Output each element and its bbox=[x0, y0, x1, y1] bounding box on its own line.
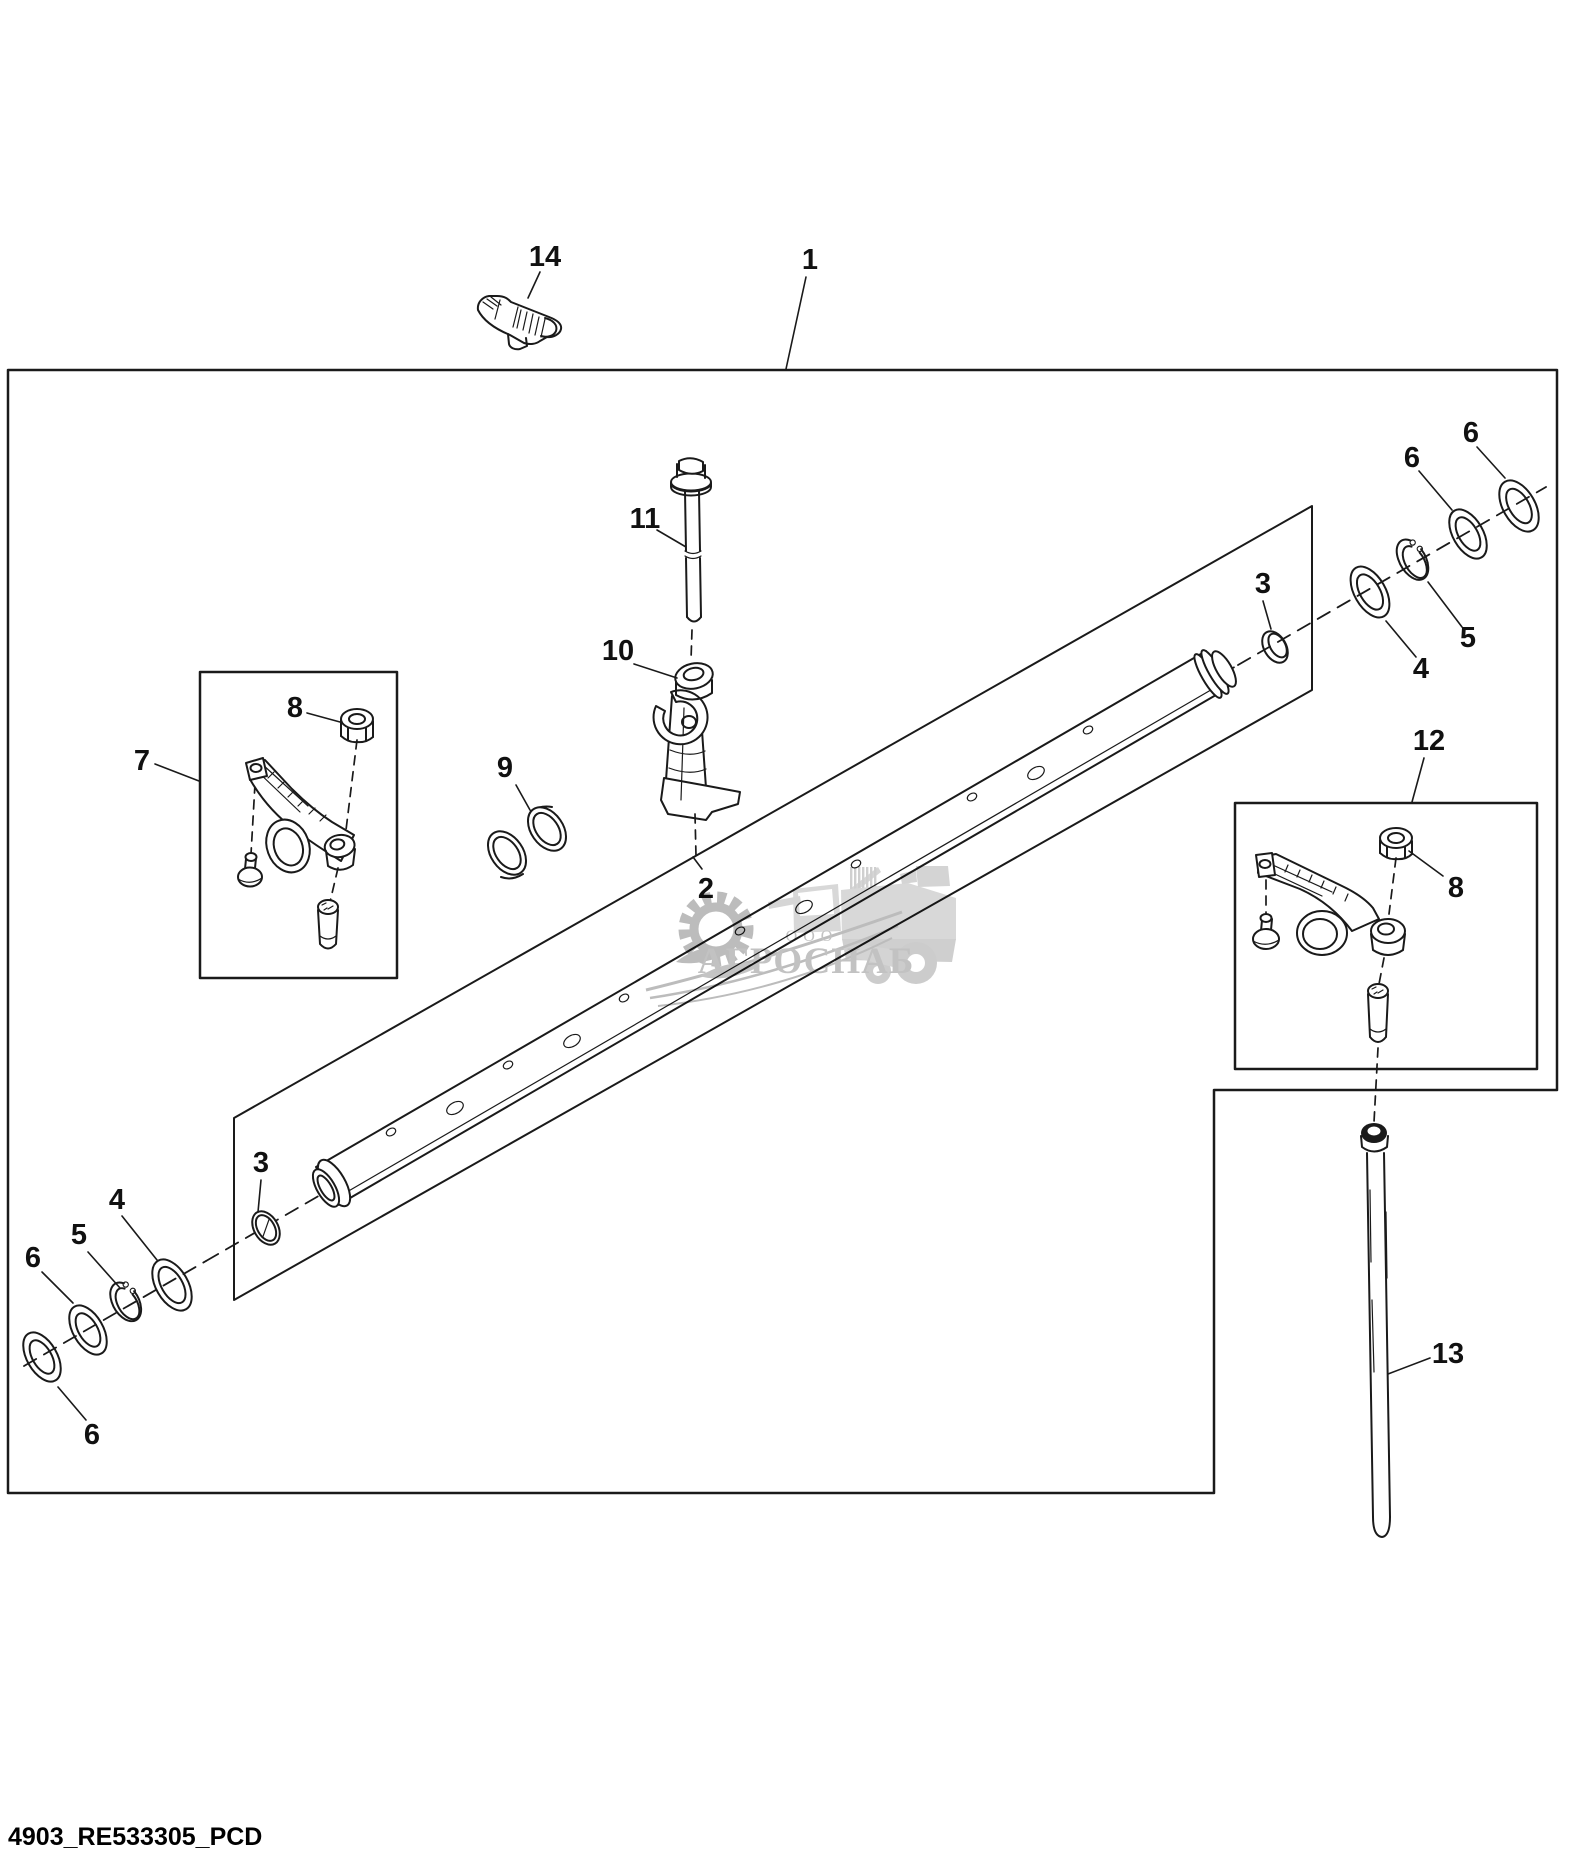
part-6-washer-left-2 bbox=[16, 1326, 69, 1388]
callout-14: 14 bbox=[529, 241, 561, 273]
part-8-nut-right bbox=[1380, 828, 1412, 859]
callout-8-left: 8 bbox=[287, 692, 303, 724]
part-13-push-rod bbox=[1361, 1123, 1390, 1537]
part-6-washer-right-inner bbox=[1442, 503, 1495, 565]
part-10-bracket bbox=[654, 660, 740, 856]
part-12-adjusting-screw bbox=[1253, 914, 1279, 949]
leader-lines bbox=[42, 272, 1505, 1420]
callout-labels: 14 1 11 10 7 8 9 2 3 4 5 6 6 12 8 13 3 4… bbox=[25, 241, 1479, 1451]
part-3-seal-left bbox=[247, 1206, 286, 1249]
part-5-snap-ring-left bbox=[104, 1277, 149, 1327]
callout-6-right-inner: 6 bbox=[1404, 442, 1420, 474]
part-7-adjusting-screw bbox=[238, 853, 262, 887]
part-9-spring bbox=[480, 800, 574, 882]
part-8-nut-left bbox=[341, 709, 373, 742]
callout-3-left: 3 bbox=[253, 1147, 269, 1179]
part-7-bushing bbox=[318, 900, 338, 949]
part-11-bolt bbox=[671, 458, 711, 660]
callout-5-right: 5 bbox=[1460, 622, 1476, 654]
parts-diagram-page: 14 1 11 10 7 8 9 2 3 4 5 6 6 12 8 13 3 4… bbox=[0, 0, 1588, 1852]
part-14-clamp bbox=[478, 296, 561, 349]
part-12-bushing bbox=[1368, 984, 1388, 1042]
callout-4-left: 4 bbox=[109, 1184, 125, 1216]
callout-12: 12 bbox=[1413, 725, 1445, 757]
callout-6-left-1: 6 bbox=[25, 1242, 41, 1274]
part-12-rocker-arm-assembly bbox=[1253, 828, 1412, 1122]
centerline-right-overlay bbox=[1238, 487, 1546, 665]
part-4-washer-left bbox=[144, 1253, 200, 1317]
callout-1: 1 bbox=[802, 244, 818, 276]
part-4-washer-right bbox=[1343, 560, 1398, 624]
callout-9: 9 bbox=[497, 752, 513, 784]
watermark-company-name: АГРОСНАБ bbox=[698, 941, 915, 982]
part-6-washer-right-outer bbox=[1491, 474, 1547, 538]
callout-13: 13 bbox=[1432, 1338, 1464, 1370]
callout-10: 10 bbox=[602, 635, 634, 667]
part-3-plug-right bbox=[1257, 627, 1293, 667]
drawing-code: 4903_RE533305_PCD bbox=[8, 1823, 262, 1851]
part-7-rocker-arm-assembly bbox=[238, 709, 373, 949]
part-5-snap-ring-right bbox=[1390, 533, 1436, 585]
callout-7: 7 bbox=[134, 745, 150, 777]
callout-4-right: 4 bbox=[1413, 653, 1429, 685]
callout-11: 11 bbox=[630, 503, 661, 535]
callout-3-right: 3 bbox=[1255, 568, 1271, 600]
part-2-rocker-shaft bbox=[308, 647, 1241, 1211]
callout-6-left-2: 6 bbox=[84, 1419, 100, 1451]
callout-5-left: 5 bbox=[71, 1219, 87, 1251]
callout-8-right: 8 bbox=[1448, 872, 1464, 904]
callout-6-right-outer: 6 bbox=[1463, 417, 1479, 449]
